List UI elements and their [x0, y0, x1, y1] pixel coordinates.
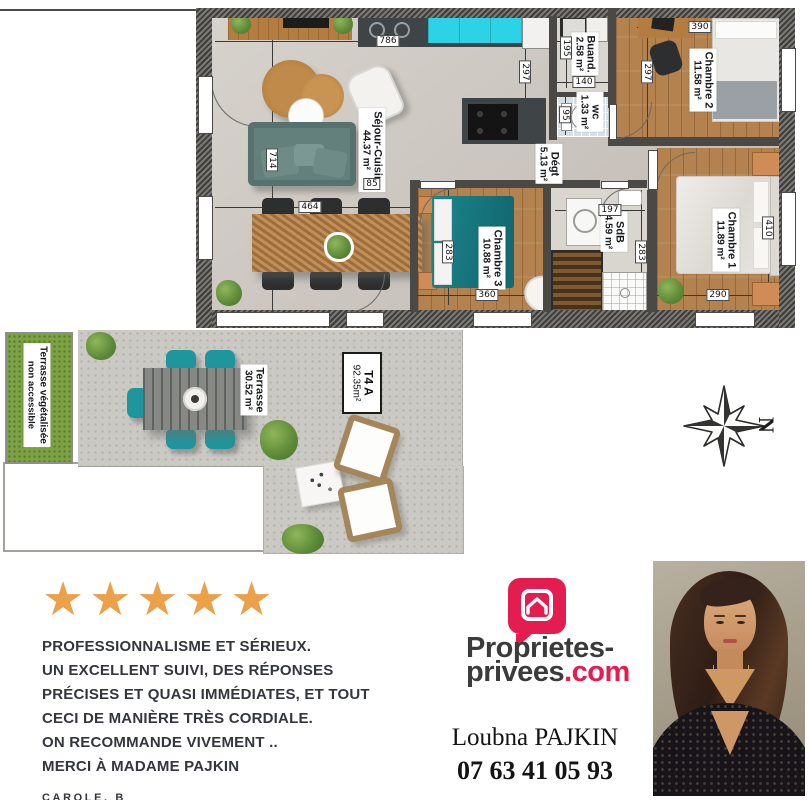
room-label-chambre2: Chambre 2 11.58 m² — [690, 49, 717, 112]
room-label-degt: Dégt 5.13 m² — [536, 144, 563, 184]
sofa — [248, 122, 356, 186]
testimonial: ★★★★★ PROFESSIONNALISME ET SÉRIEUX. UN E… — [42, 576, 422, 800]
dimension-label: 85 — [363, 178, 380, 190]
dimension-label: 95 — [559, 106, 571, 123]
wall — [410, 188, 418, 312]
wall — [196, 8, 212, 328]
dimension-label: 297 — [641, 60, 653, 83]
terrace-door — [346, 312, 384, 327]
nightstand — [752, 282, 780, 306]
rattan-armchair — [337, 477, 403, 543]
t4-area: 92.35m² — [350, 365, 361, 402]
dimension-label: 410 — [762, 216, 774, 239]
wordmark-tld: .com — [564, 656, 630, 688]
terrace-chair — [166, 428, 196, 449]
washing-machine — [566, 198, 602, 246]
door — [601, 181, 629, 189]
boundary-line — [3, 550, 264, 552]
boundary-line — [3, 462, 5, 552]
real-estate-listing: T4 A 92.35m² N Séjour-Cuisine 44.37 m² — [0, 0, 809, 800]
wordmark-name: privees — [466, 656, 564, 688]
window — [473, 312, 532, 327]
wall — [455, 180, 600, 188]
testimonial-line: UN EXCELLENT SUIVI, DES RÉPONSES — [42, 661, 422, 681]
agent-photo — [649, 557, 809, 800]
wall — [628, 180, 647, 188]
dimension-label: 197 — [598, 204, 621, 216]
room-label-terrasse: Terrasse 30.52 m² — [241, 364, 268, 415]
wall — [543, 188, 551, 312]
wall — [410, 180, 420, 188]
agent-phone: 07 63 41 05 93 — [440, 756, 630, 786]
dimension-label: 140 — [572, 76, 595, 88]
terrace-table — [143, 368, 247, 430]
sofa-cushion — [312, 147, 348, 178]
window — [198, 196, 213, 260]
testimonial-line: ON RECOMMANDE VIVEMENT .. — [42, 733, 422, 753]
agency-wordmark: Proprietes- privees.com — [466, 636, 636, 684]
dimension-label: 195 — [560, 36, 572, 59]
compass-north-letter: N — [753, 417, 779, 433]
testimonial-line: PROFESSIONNALISME ET SÉRIEUX. — [42, 637, 422, 657]
room-label-green-roof: Terrasse végétalisée non accessible — [24, 343, 51, 447]
wall — [196, 8, 795, 18]
t4-type: T4 A — [361, 365, 374, 402]
agent-eye — [737, 621, 745, 624]
table-centerpiece — [324, 232, 354, 262]
terrace-chair — [205, 428, 235, 449]
bed-pillow — [715, 21, 777, 39]
testimonial-line: MERCI À MADAME PAJKIN — [42, 757, 422, 777]
dimension-label: 786 — [376, 35, 399, 47]
window — [781, 48, 796, 112]
testimonial-author: CAROLE. B — [42, 792, 422, 800]
dining-chair — [262, 270, 294, 290]
agent-eye — [716, 621, 724, 624]
floor-plan: T4 A 92.35m² N Séjour-Cuisine 44.37 m² — [0, 0, 809, 557]
plant — [216, 280, 242, 306]
testimonial-line: CECI DE MANIÈRE TRÈS CORDIALE. — [42, 709, 422, 729]
washer-drum-icon — [573, 209, 597, 233]
bed-blanket — [713, 81, 777, 119]
dimension-label: 464 — [298, 201, 321, 213]
dining-chair — [310, 270, 342, 290]
wall — [608, 137, 779, 146]
agent-eyebrow — [735, 615, 746, 617]
door — [420, 181, 456, 189]
window — [216, 312, 330, 327]
dimension-label: 390 — [688, 21, 711, 33]
room-label-chambre1: Chambre 1 11.89 m² — [713, 209, 740, 272]
room-label-wc: wc 1.33 m² — [577, 92, 604, 132]
bush — [282, 524, 324, 554]
room-label-chambre3: Chambre 3 10.88 m² — [479, 227, 506, 290]
star-rating: ★★★★★ — [42, 576, 422, 623]
fridge — [522, 14, 551, 49]
dimension-label: 297 — [519, 60, 531, 83]
window — [781, 192, 796, 266]
door — [198, 76, 213, 134]
cooktop — [468, 104, 518, 140]
shower — [602, 272, 647, 313]
room-label-sdb: SdB 4.59 m² — [601, 212, 628, 252]
bed-chambre2 — [712, 18, 780, 122]
table-decor-dark — [191, 395, 199, 403]
wall — [549, 16, 557, 140]
boundary-line — [0, 9, 198, 11]
dimension-label: 283 — [442, 240, 454, 263]
shower-drain-icon — [620, 288, 630, 298]
testimonial-line: PRÉCISES ET QUASI IMMÉDIATES, ET TOUT — [42, 685, 422, 705]
dimension-label: 714 — [266, 148, 278, 171]
agent-photo-image — [653, 561, 805, 796]
bush — [86, 332, 116, 360]
agent-necklace — [713, 665, 749, 684]
dimension-label: 360 — [475, 289, 498, 301]
door — [648, 150, 658, 190]
window — [695, 312, 755, 327]
wardrobe — [551, 250, 603, 315]
agent-lips — [723, 639, 737, 643]
t4-label: T4 A 92.35m² — [342, 352, 382, 414]
wall — [647, 190, 657, 312]
door — [609, 104, 617, 140]
dimension-label: 283 — [635, 240, 647, 263]
kitchen-worktop-cyan — [428, 14, 522, 43]
bush — [260, 420, 298, 460]
plant — [658, 278, 684, 304]
wall — [608, 8, 616, 108]
agent-eyebrow — [714, 615, 725, 617]
dimension-label: 290 — [706, 289, 729, 301]
agent-name: Loubna PAJKIN — [440, 724, 630, 752]
nightstand — [752, 152, 780, 176]
agent-face — [704, 587, 756, 655]
room-label-buand: Buand. 2.58 m² — [572, 32, 599, 75]
